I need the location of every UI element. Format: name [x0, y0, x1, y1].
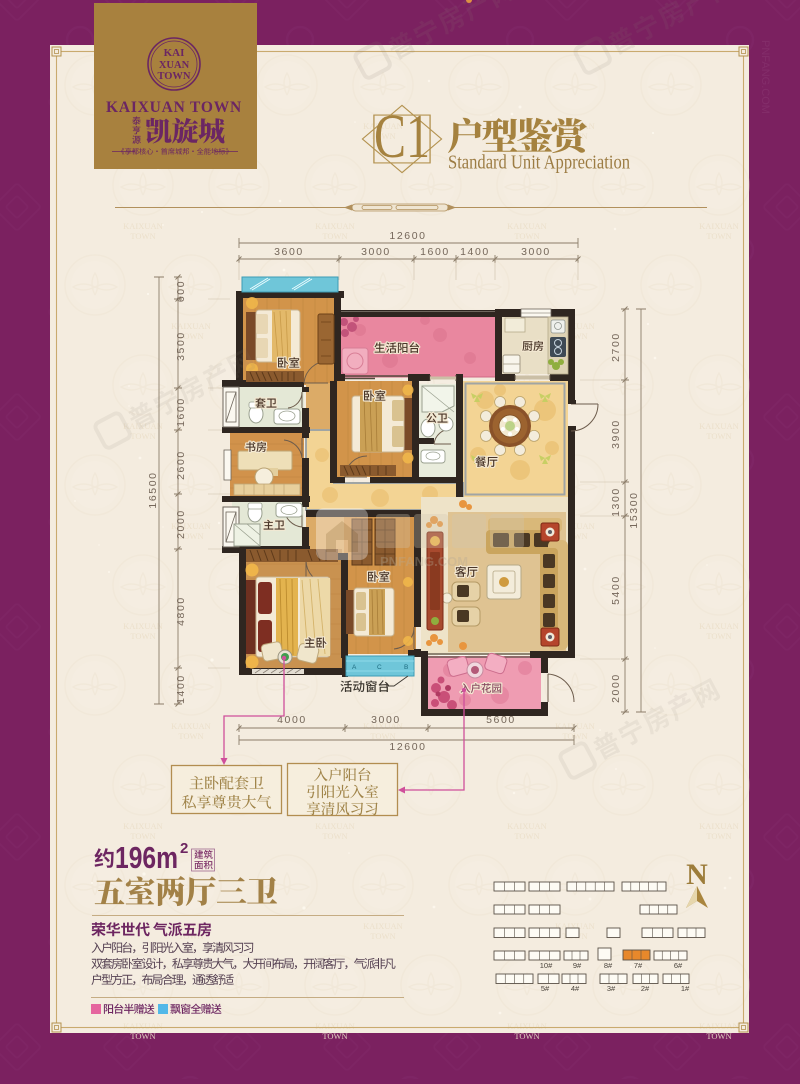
svg-text:TOWN: TOWN	[322, 1031, 347, 1041]
svg-text:12600: 12600	[389, 230, 426, 242]
svg-text:TOWN: TOWN	[130, 631, 155, 641]
svg-text:TOWN: TOWN	[370, 731, 395, 741]
svg-text:16500: 16500	[147, 471, 159, 508]
svg-text:3600: 3600	[274, 246, 304, 258]
svg-text:KAIXUAN: KAIXUAN	[315, 221, 355, 231]
svg-text:600: 600	[175, 280, 187, 302]
svg-text:12600: 12600	[389, 741, 426, 753]
svg-text:TOWN: TOWN	[178, 731, 203, 741]
svg-text:Standard Unit Appreciation: Standard Unit Appreciation	[448, 152, 630, 174]
svg-text:KAIXUAN: KAIXUAN	[171, 721, 211, 731]
svg-text:KAIXUAN: KAIXUAN	[507, 1021, 547, 1031]
svg-text:TOWN: TOWN	[514, 1031, 539, 1041]
svg-text:TOWN: TOWN	[157, 71, 190, 82]
svg-text:2600: 2600	[175, 450, 187, 480]
svg-text:C: C	[377, 664, 382, 671]
svg-text:TOWN: TOWN	[706, 431, 731, 441]
svg-text:PNFANG.COM: PNFANG.COM	[759, 40, 771, 114]
svg-text:TOWN: TOWN	[706, 231, 731, 241]
svg-text:10#: 10#	[540, 961, 553, 970]
svg-text:TOWN: TOWN	[562, 731, 587, 741]
svg-text:TOWN: TOWN	[130, 431, 155, 441]
svg-text:1400: 1400	[460, 246, 490, 258]
svg-text:3900: 3900	[610, 419, 622, 449]
svg-text:KAIXUAN: KAIXUAN	[507, 821, 547, 831]
svg-text:KAIXUAN: KAIXUAN	[363, 921, 403, 931]
svg-text:KAIXUAN: KAIXUAN	[699, 221, 739, 231]
svg-text:TOWN: TOWN	[322, 231, 347, 241]
svg-text:2700: 2700	[610, 332, 622, 362]
svg-text:KAIXUAN: KAIXUAN	[315, 821, 355, 831]
svg-text:196m: 196m	[115, 840, 178, 875]
svg-text:2: 2	[180, 840, 188, 857]
svg-text:KAIXUAN: KAIXUAN	[123, 621, 163, 631]
svg-text:TOWN: TOWN	[514, 831, 539, 841]
svg-text:KAIXUAN: KAIXUAN	[699, 621, 739, 631]
svg-text:TOWN: TOWN	[130, 231, 155, 241]
svg-text:KAIXUAN: KAIXUAN	[699, 1021, 739, 1031]
svg-text:5#: 5#	[541, 984, 550, 993]
svg-text:1#: 1#	[681, 984, 690, 993]
svg-text:1600: 1600	[420, 246, 450, 258]
svg-text:7#: 7#	[634, 961, 643, 970]
svg-text:1600: 1600	[175, 397, 187, 427]
svg-text:TOWN: TOWN	[706, 1031, 731, 1041]
svg-text:TOWN: TOWN	[130, 1031, 155, 1041]
svg-text:KAIXUAN: KAIXUAN	[123, 1021, 163, 1031]
svg-text:TOWN: TOWN	[370, 931, 395, 941]
svg-text:TOWN: TOWN	[706, 831, 731, 841]
svg-text:4#: 4#	[571, 984, 580, 993]
svg-text:3500: 3500	[175, 331, 187, 361]
svg-text:8#: 8#	[604, 961, 613, 970]
svg-text:C1: C1	[374, 103, 430, 171]
svg-text:KAIXUAN TOWN: KAIXUAN TOWN	[106, 99, 242, 116]
svg-text:KAIXUAN: KAIXUAN	[171, 321, 211, 331]
svg-text:KAIXUAN: KAIXUAN	[555, 721, 595, 731]
svg-text:3#: 3#	[607, 984, 616, 993]
svg-text:TOWN: TOWN	[706, 631, 731, 641]
svg-text:XUAN: XUAN	[159, 60, 190, 71]
svg-text:2#: 2#	[641, 984, 650, 993]
svg-text:2000: 2000	[610, 673, 622, 703]
svg-text:3000: 3000	[361, 246, 391, 258]
svg-text:B: B	[404, 664, 408, 671]
svg-text:KAIXUAN: KAIXUAN	[123, 221, 163, 231]
svg-text:3000: 3000	[521, 246, 551, 258]
svg-text:2000: 2000	[175, 509, 187, 539]
svg-text:3000: 3000	[371, 714, 401, 726]
svg-text:15300: 15300	[628, 491, 640, 528]
svg-text:5400: 5400	[610, 575, 622, 605]
svg-text:KAIXUAN: KAIXUAN	[315, 1021, 355, 1031]
svg-text:A: A	[352, 664, 357, 671]
svg-text:1400: 1400	[175, 674, 187, 704]
svg-text:KAIXUAN: KAIXUAN	[123, 821, 163, 831]
svg-text:1300: 1300	[610, 487, 622, 517]
svg-text:KAI: KAI	[164, 47, 185, 59]
svg-text:9#: 9#	[573, 961, 582, 970]
svg-text:4800: 4800	[175, 596, 187, 626]
svg-text:KAIXUAN: KAIXUAN	[699, 421, 739, 431]
svg-text:TOWN: TOWN	[322, 831, 347, 841]
svg-text:6#: 6#	[674, 961, 683, 970]
svg-text:N: N	[686, 858, 708, 891]
svg-text:KAIXUAN: KAIXUAN	[507, 221, 547, 231]
svg-text:TOWN: TOWN	[514, 231, 539, 241]
svg-text:KAIXUAN: KAIXUAN	[699, 821, 739, 831]
